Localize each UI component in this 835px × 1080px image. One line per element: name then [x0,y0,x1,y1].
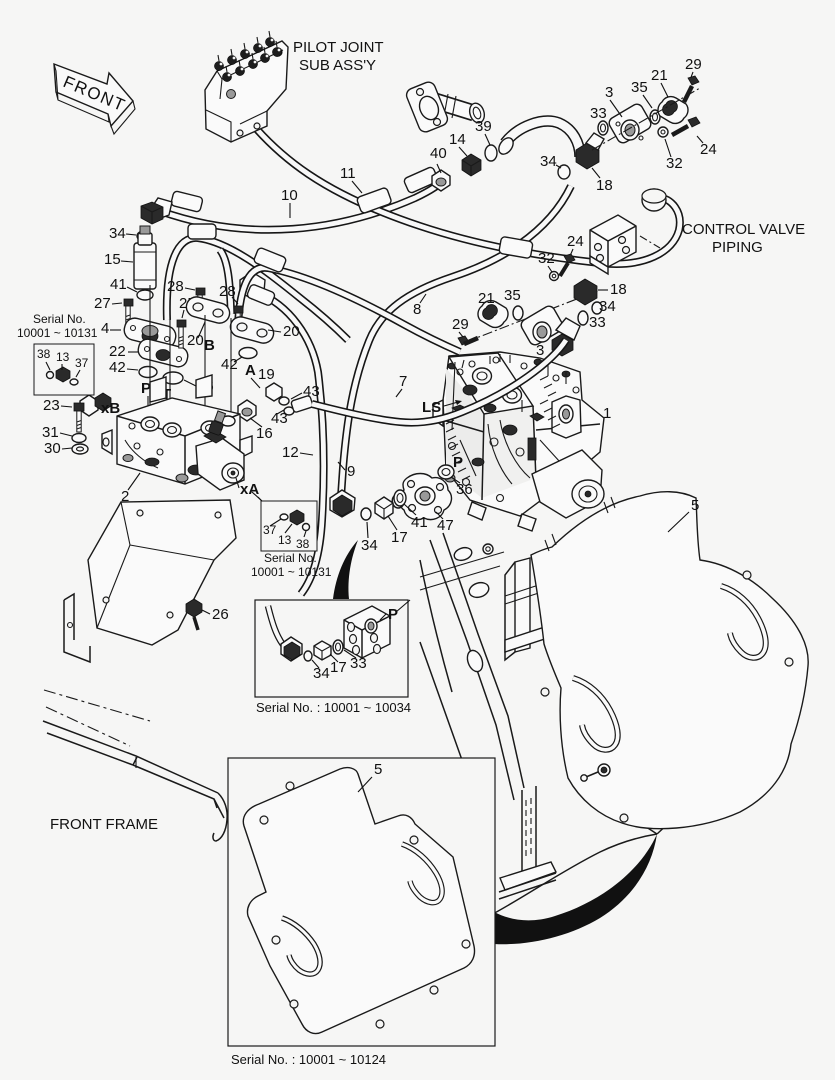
svg-text:15: 15 [104,251,121,268]
svg-text:22: 22 [109,343,126,360]
svg-text:FRONT FRAME: FRONT FRAME [50,816,158,833]
svg-text:P: P [453,454,463,471]
svg-text:20: 20 [187,332,204,349]
svg-text:33: 33 [590,105,607,122]
svg-text:37: 37 [75,356,89,370]
svg-text:42: 42 [221,356,238,373]
svg-text:17: 17 [330,659,347,676]
svg-text:Serial No. : 10001 ~ 10034: Serial No. : 10001 ~ 10034 [256,700,411,715]
svg-text:28: 28 [167,278,184,295]
svg-text:31: 31 [42,424,59,441]
svg-text:10001 ~ 10131: 10001 ~ 10131 [17,326,98,340]
svg-text:41: 41 [411,514,428,531]
svg-text:Serial No.: Serial No. [33,312,86,326]
svg-text:33: 33 [350,655,367,672]
svg-text:36: 36 [456,481,473,498]
svg-text:11: 11 [340,165,356,182]
svg-text:8: 8 [413,301,421,318]
svg-text:23: 23 [43,397,60,414]
svg-text:A: A [245,362,256,379]
svg-text:16: 16 [256,425,273,442]
svg-text:34: 34 [313,665,330,682]
svg-text:PILOT JOINT: PILOT JOINT [293,39,384,56]
svg-text:9: 9 [347,463,355,480]
svg-text:7: 7 [399,373,407,390]
svg-text:P: P [388,606,398,623]
svg-text:37: 37 [263,523,277,537]
svg-text:4: 4 [101,320,109,337]
svg-text:21: 21 [478,290,495,307]
svg-text:10001 ~ 10131: 10001 ~ 10131 [251,565,332,579]
svg-text:14: 14 [449,131,466,148]
svg-text:29: 29 [685,56,702,73]
svg-text:33: 33 [589,314,606,331]
svg-text:3: 3 [605,84,613,101]
svg-text:SUB ASS'Y: SUB ASS'Y [299,57,376,74]
svg-text:40: 40 [430,145,447,162]
svg-text:34: 34 [540,153,557,170]
svg-text:35: 35 [504,287,521,304]
svg-text:26: 26 [212,606,229,623]
svg-text:47: 47 [437,517,454,534]
svg-text:10: 10 [281,187,298,204]
svg-text:41: 41 [110,276,127,293]
svg-text:19: 19 [258,366,275,383]
svg-text:Serial No. : 10001 ~ 10124: Serial No. : 10001 ~ 10124 [231,1052,386,1067]
svg-text:39: 39 [475,118,492,135]
svg-text:Serial No.: Serial No. [264,551,317,565]
svg-text:18: 18 [596,177,613,194]
svg-text:30: 30 [44,440,61,457]
svg-text:38: 38 [296,537,310,551]
svg-text:24: 24 [567,233,584,250]
svg-text:32: 32 [538,250,555,267]
svg-text:17: 17 [391,529,408,546]
svg-text:20: 20 [283,323,300,340]
svg-text:12: 12 [282,444,299,461]
svg-text:34: 34 [361,537,378,554]
svg-text:5: 5 [374,761,382,778]
svg-text:35: 35 [631,79,648,96]
svg-text:CONTROL VALVE: CONTROL VALVE [682,221,805,238]
svg-text:43: 43 [303,383,320,400]
svg-text:27: 27 [94,295,111,312]
svg-text:42: 42 [109,359,126,376]
svg-text:xB: xB [101,400,120,417]
svg-text:32: 32 [666,155,683,172]
svg-text:29: 29 [452,316,469,333]
svg-text:28: 28 [219,283,236,300]
svg-text:34: 34 [599,298,616,315]
svg-text:24: 24 [700,141,717,158]
svg-text:21: 21 [651,67,668,84]
svg-text:LS: LS [422,399,441,416]
svg-text:13: 13 [56,350,70,364]
svg-text:18: 18 [610,281,627,298]
svg-text:5: 5 [691,497,699,514]
svg-text:13: 13 [278,533,292,547]
svg-text:B: B [204,337,215,354]
svg-text:PIPING: PIPING [712,239,763,256]
svg-text:3: 3 [536,342,544,359]
svg-text:38: 38 [37,347,51,361]
svg-text:34: 34 [109,225,126,242]
